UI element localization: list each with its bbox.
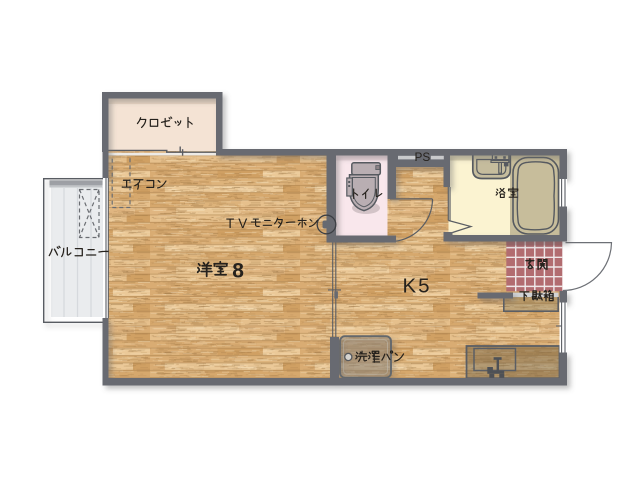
svg-text:8: 8 xyxy=(232,260,244,283)
svg-text:K5: K5 xyxy=(403,275,432,298)
svg-text:PS: PS xyxy=(415,150,431,164)
svg-text:TV: TV xyxy=(226,216,251,231)
